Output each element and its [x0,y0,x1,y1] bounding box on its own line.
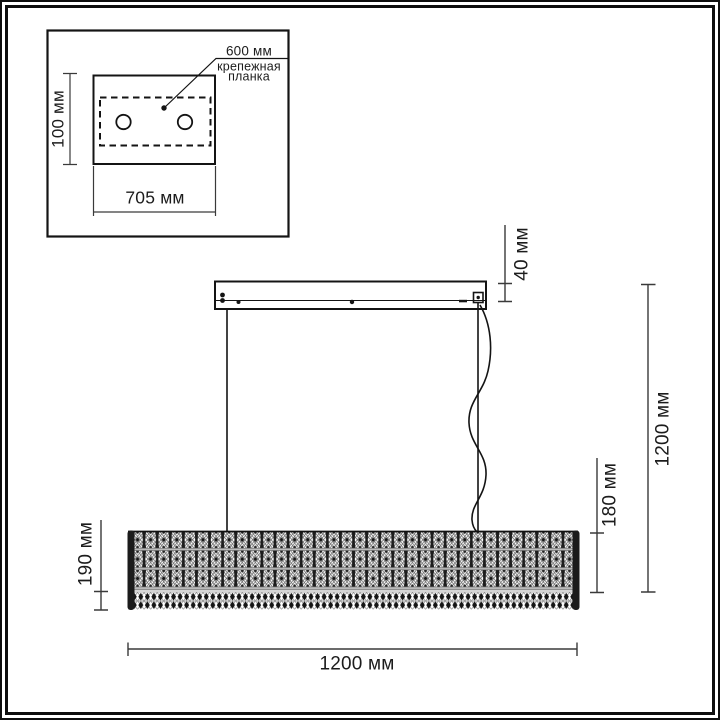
bracket-caption: крепежная планка [217,62,281,81]
plate-width-label: 705 мм [125,189,184,207]
shade-end-cap-right [573,531,580,611]
dim-line-canopy-height [498,225,512,302]
overall-length-label: 1200 мм [319,655,394,674]
mounting-hole-left [116,115,130,129]
cord-grip-dot [477,296,480,299]
fixture-dimension-drawing [0,0,720,720]
diffuser-height-label: 180 мм [601,463,620,527]
ceiling-bar-fittings [220,293,467,305]
overall-height-label: 1200 мм [654,391,673,466]
shade-lower-band [131,590,576,593]
power-cord [469,305,491,532]
canopy-height-label: 40 мм [513,227,532,281]
bracket-caption-line2: планка [217,72,281,82]
bracket-length-label: 600 мм [226,44,272,58]
ceiling-bar [215,282,486,310]
crystal-shade [128,531,580,611]
main-elevation-view [94,225,656,656]
shade-end-cap-left [128,531,135,611]
shade-crystal-body [131,532,576,590]
canopy-top-view [94,76,216,165]
mounting-hole-right [178,115,192,129]
plate-depth-label: 100 мм [50,90,67,148]
shade-height-label: 190 мм [77,522,96,586]
